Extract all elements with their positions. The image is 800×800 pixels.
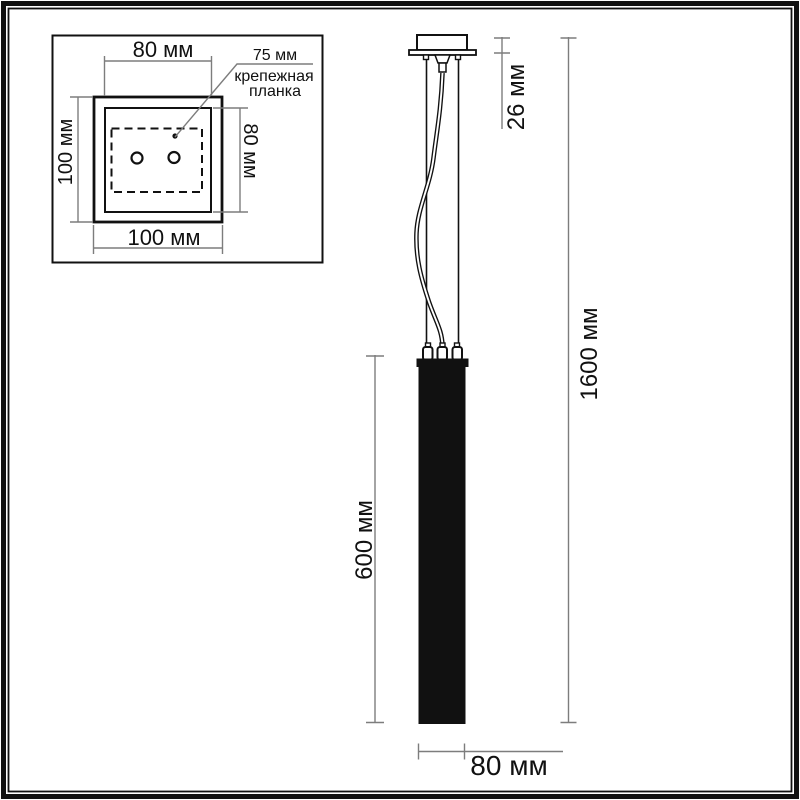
cable-terminal-left <box>423 347 433 360</box>
mounting-plate-top-view: 75 мм крепежная планка 80 мм 100 мм 80 м… <box>53 36 323 263</box>
canopy-depth-dimension-label: 26 мм <box>503 64 530 130</box>
cable-terminal-center <box>438 347 448 360</box>
canopy-cord-stem <box>439 63 446 72</box>
mounting-hole-right <box>169 152 180 163</box>
pendant-side-view: 26 мм 1600 мм 600 мм 80 мм <box>351 35 603 781</box>
callout-value-label: 75 мм <box>253 47 297 64</box>
canopy-cable-gripper-right <box>456 55 461 60</box>
inset-right-dimension-label: 80 мм <box>239 123 261 178</box>
plate-inner-square <box>105 108 211 212</box>
dimension-drawing-page: 75 мм крепежная планка 80 мм 100 мм 80 м… <box>0 0 800 800</box>
shade-top-collar <box>417 359 469 368</box>
inset-top-dimension-label: 80 мм <box>133 37 194 62</box>
pendant-lamp-dimension-diagram: 75 мм крепежная планка 80 мм 100 мм 80 м… <box>0 0 800 800</box>
power-cord-highlight <box>416 73 442 346</box>
shade-tube <box>419 366 466 724</box>
callout-text-line2: планка <box>249 83 301 100</box>
total-height-dimension-label: 1600 мм <box>576 307 603 400</box>
shade-width-dimension-label: 80 мм <box>470 750 547 781</box>
canopy-box <box>417 35 467 50</box>
total-height-dimension-lines <box>561 37 577 723</box>
cable-terminal-right <box>453 347 463 360</box>
inset-left-dimension-label: 100 мм <box>55 119 77 185</box>
inset-bottom-dimension-label: 100 мм <box>127 225 200 250</box>
mounting-hole-left <box>132 153 143 164</box>
canopy-cord-connector <box>435 55 450 63</box>
shade-height-dimension-label: 600 мм <box>351 500 378 580</box>
canopy-cable-gripper-left <box>424 55 429 60</box>
